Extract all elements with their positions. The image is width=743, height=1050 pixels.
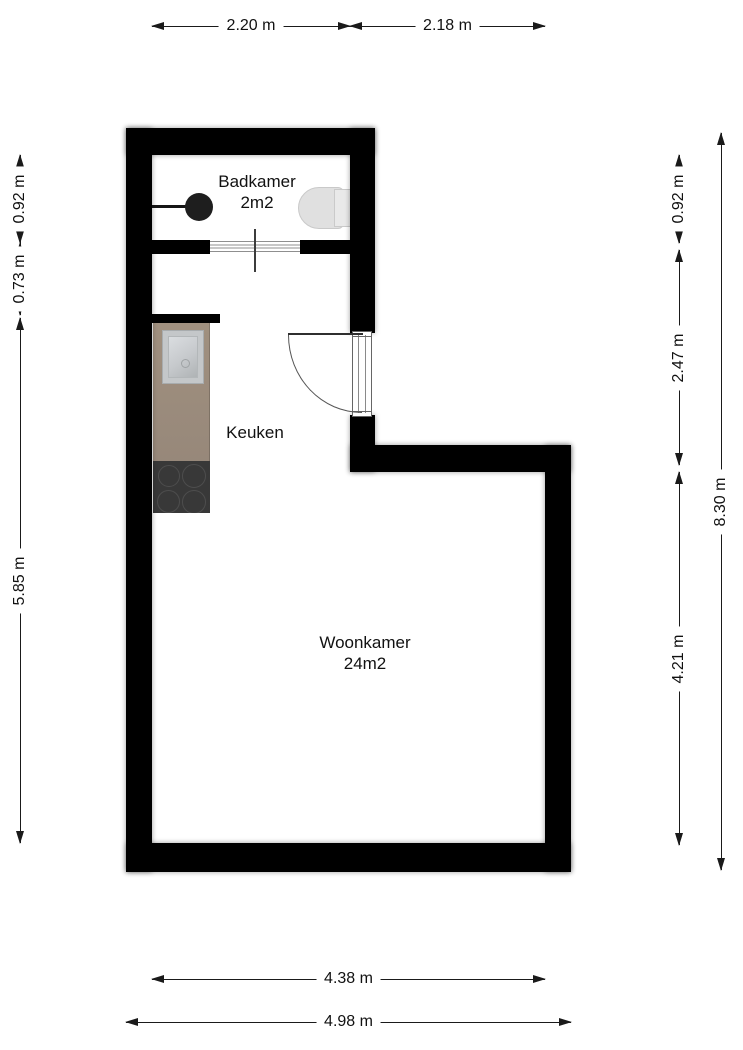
arrow-up-icon	[16, 154, 24, 167]
kitchen-sink-drain	[181, 359, 190, 368]
arrow-left-icon	[151, 975, 164, 983]
dimension-label: 4.98 m	[316, 1013, 381, 1031]
dimension-label: 4.38 m	[316, 970, 381, 988]
dimension-label: 2.20 m	[219, 17, 284, 35]
dimension-label: 2.47 m	[670, 325, 688, 390]
dimension-label: 2.18 m	[415, 17, 480, 35]
room-name: Badkamer	[180, 171, 334, 192]
arrow-left-icon	[125, 1018, 138, 1026]
wall-step	[350, 445, 571, 472]
room-label-badkamer: Badkamer 2m2	[180, 171, 334, 213]
arrow-up-icon	[675, 471, 683, 484]
dimension-label: 0.73 m	[11, 247, 29, 312]
stove-burner-icon	[157, 490, 180, 513]
toilet-tank-icon	[334, 189, 351, 227]
arrow-down-icon	[675, 453, 683, 466]
arrow-down-icon	[675, 833, 683, 846]
kitchen-sink-icon	[162, 330, 204, 384]
room-area: 2m2	[180, 192, 334, 213]
room-name: Woonkamer	[290, 632, 440, 653]
sliding-door-center-line	[254, 229, 256, 272]
arrow-left-icon	[349, 22, 362, 30]
floor-plan: Badkamer 2m2 Keuken Woonkamer 24m2 2.20 …	[0, 0, 743, 1050]
dimension-label: 0.92 m	[670, 167, 688, 232]
wall-bathroom-left	[152, 240, 210, 254]
wall-left	[126, 128, 152, 872]
kitchen-sink-basin	[168, 336, 198, 378]
room-label-woonkamer: Woonkamer 24m2	[290, 632, 440, 674]
dimension-label: 0.92 m	[11, 167, 29, 232]
arrow-up-icon	[717, 132, 725, 145]
door-swing-arc-icon	[288, 335, 362, 413]
wall-bathroom-right	[300, 240, 350, 254]
arrow-up-icon	[675, 154, 683, 167]
arrow-up-icon	[16, 317, 24, 330]
room-label-keuken: Keuken	[205, 422, 305, 443]
stove-icon	[153, 461, 210, 513]
wall-kitchen-stub	[152, 314, 220, 323]
wall-top	[126, 128, 375, 155]
stove-burner-icon	[182, 464, 206, 488]
arrow-left-icon	[151, 22, 164, 30]
dimension-label: 5.85 m	[11, 548, 29, 613]
arrow-up-icon	[675, 249, 683, 262]
arrow-right-icon	[533, 22, 546, 30]
arrow-right-icon	[559, 1018, 572, 1026]
dimension-label: 4.21 m	[670, 626, 688, 691]
arrow-down-icon	[717, 858, 725, 871]
wall-right-upper	[350, 128, 375, 333]
stove-burner-icon	[182, 490, 206, 513]
dimension-label: 8.30 m	[712, 469, 730, 534]
arrow-down-icon	[675, 231, 683, 244]
wall-right-lower	[545, 445, 571, 872]
room-area: 24m2	[290, 653, 440, 674]
stove-burner-icon	[158, 465, 180, 487]
room-name: Keuken	[205, 422, 305, 443]
arrow-right-icon	[533, 975, 546, 983]
wall-bottom	[126, 843, 571, 872]
arrow-down-icon	[16, 831, 24, 844]
